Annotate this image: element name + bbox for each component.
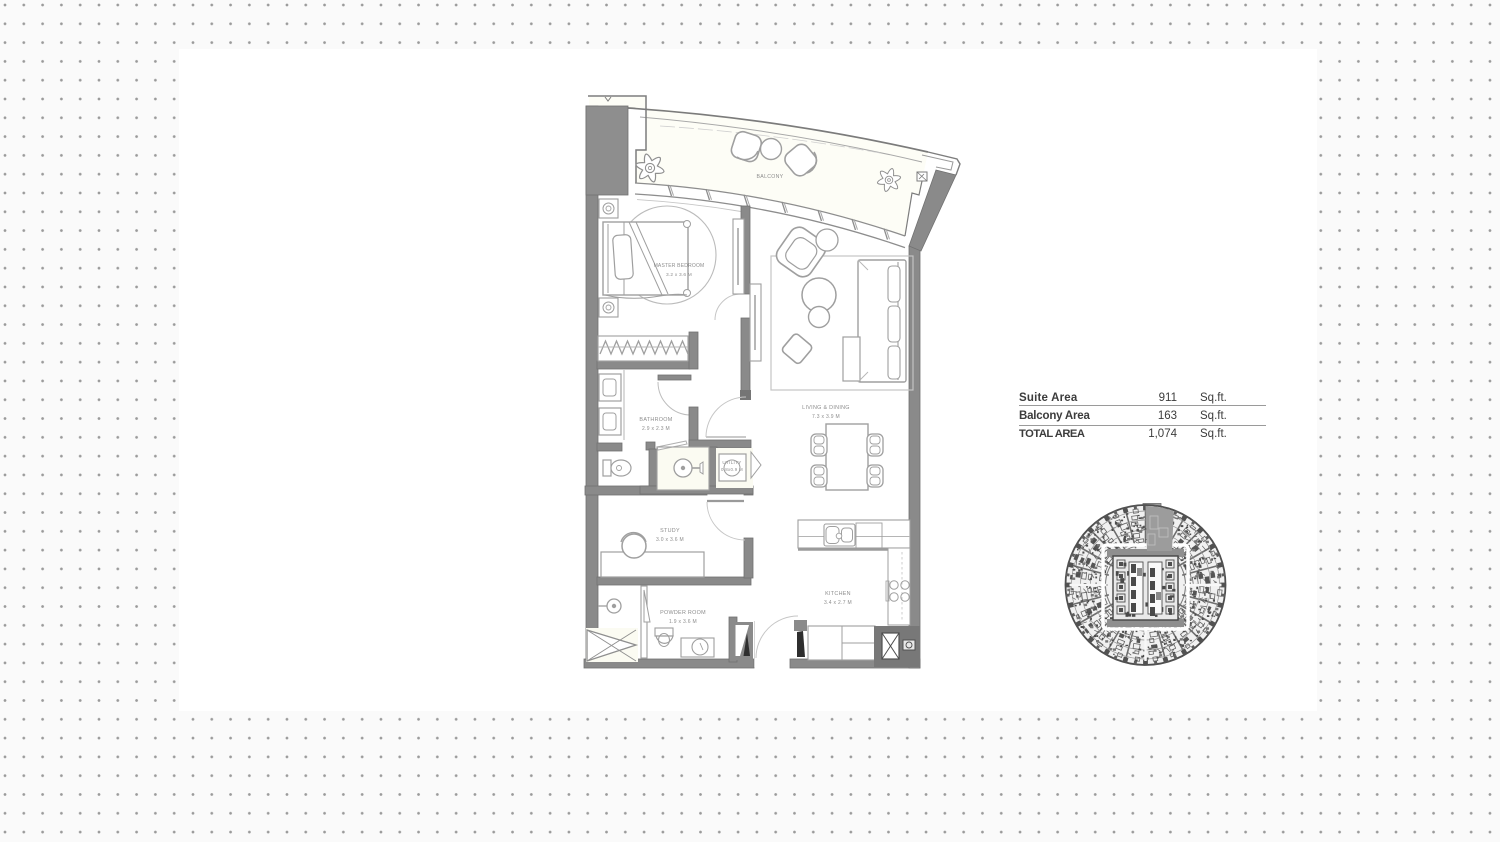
svg-text:BALCONY: BALCONY: [757, 174, 784, 180]
svg-text:3.0 x 3.6 M: 3.0 x 3.6 M: [656, 537, 684, 543]
svg-text:BATHROOM: BATHROOM: [639, 417, 672, 423]
svg-text:POWDER ROOM: POWDER ROOM: [660, 610, 706, 616]
svg-text:KITCHEN: KITCHEN: [825, 591, 851, 597]
svg-text:STUDY: STUDY: [660, 528, 680, 534]
svg-text:UTILITY: UTILITY: [722, 460, 741, 465]
svg-text:MASTER BEDROOM: MASTER BEDROOM: [654, 263, 705, 269]
svg-text:7.3 x 3.9 M: 7.3 x 3.9 M: [812, 414, 840, 420]
svg-text:3.2 x 3.6 M: 3.2 x 3.6 M: [666, 272, 692, 278]
svg-text:1.9 x 3.6 M: 1.9 x 3.6 M: [669, 619, 697, 625]
svg-text:3.4 x 2.7 M: 3.4 x 2.7 M: [824, 600, 852, 606]
svg-text:0.8x0.9 M: 0.8x0.9 M: [721, 467, 743, 472]
svg-text:2.9 x 2.3 M: 2.9 x 2.3 M: [642, 426, 670, 432]
svg-text:LIVING & DINING: LIVING & DINING: [802, 405, 850, 411]
